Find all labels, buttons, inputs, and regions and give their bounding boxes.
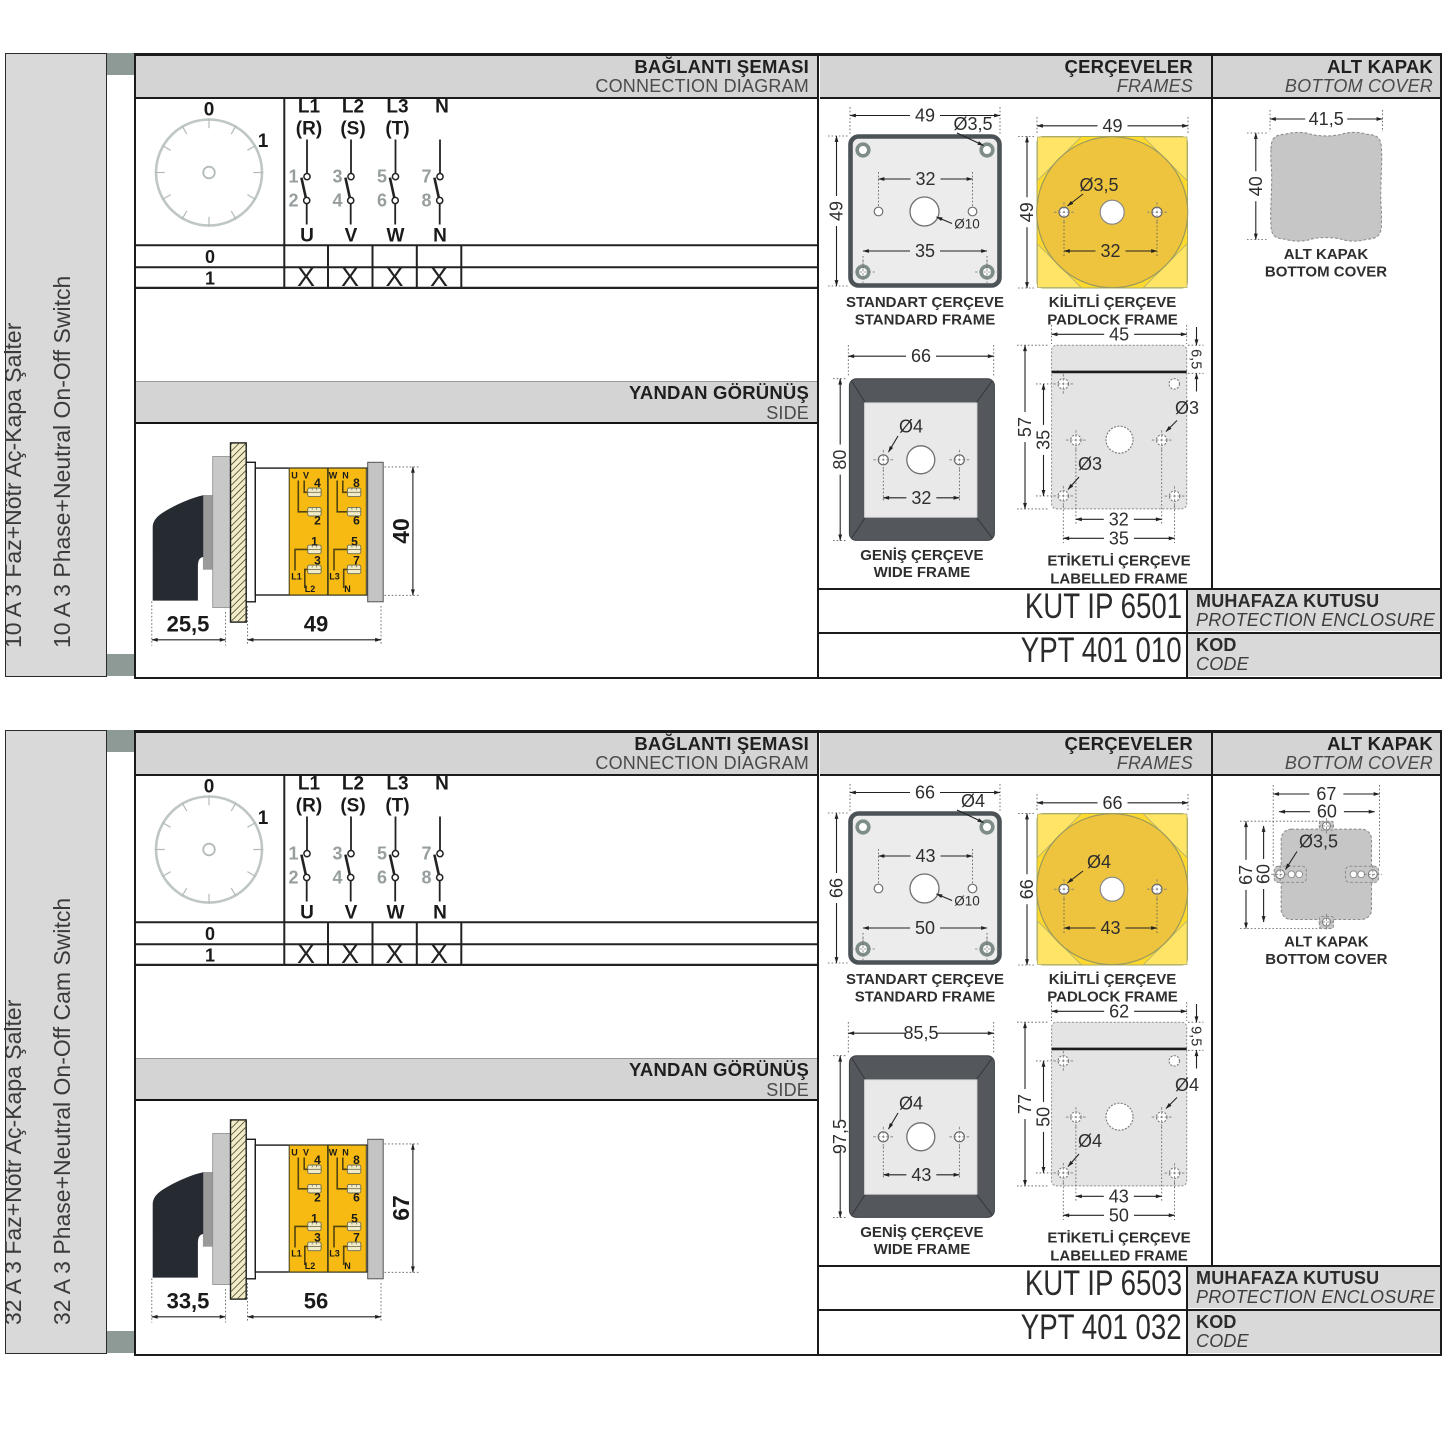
svg-text:Ø3,5: Ø3,5 [1079,175,1118,195]
svg-text:8: 8 [353,476,360,490]
svg-text:W: W [387,903,405,924]
svg-text:X: X [385,262,403,292]
svg-text:67: 67 [388,1195,414,1221]
svg-text:1: 1 [205,269,215,289]
svg-text:0: 0 [205,924,215,944]
svg-text:N: N [433,903,447,924]
svg-text:L1: L1 [298,776,321,795]
svg-text:33,5: 33,5 [167,1289,210,1314]
svg-text:Ø4: Ø4 [899,417,923,437]
svg-text:66: 66 [915,783,935,803]
svg-text:X: X [430,262,448,292]
svg-text:43: 43 [911,1165,931,1185]
svg-text:1: 1 [288,844,298,864]
svg-text:8: 8 [421,191,431,211]
svg-text:35: 35 [915,241,935,261]
svg-text:Ø10: Ø10 [954,894,980,909]
svg-text:6: 6 [353,1191,360,1205]
svg-text:43: 43 [1100,918,1120,938]
svg-text:U: U [300,903,314,924]
svg-text:(R): (R) [296,796,322,817]
svg-text:L3: L3 [329,1249,340,1259]
svg-text:66: 66 [911,346,931,366]
svg-text:25,5: 25,5 [167,612,210,637]
svg-text:3: 3 [314,1231,321,1245]
svg-text:ETİKETLİ ÇERÇEVE: ETİKETLİ ÇERÇEVE [1047,553,1190,570]
svg-text:4: 4 [332,868,342,888]
svg-text:1: 1 [258,131,269,152]
svg-text:45: 45 [1109,324,1129,344]
svg-text:2: 2 [288,868,298,888]
svg-text:8: 8 [421,868,431,888]
svg-text:6: 6 [353,514,360,528]
svg-text:1: 1 [258,808,269,829]
svg-text:Ø4: Ø4 [1175,1075,1199,1095]
svg-text:1: 1 [288,167,298,187]
svg-text:L1: L1 [291,1249,302,1259]
svg-text:2: 2 [314,1191,321,1205]
svg-text:L2: L2 [305,1261,316,1271]
svg-text:Ø3,5: Ø3,5 [1299,832,1338,852]
svg-text:40: 40 [388,518,414,544]
svg-text:(S): (S) [340,119,365,140]
svg-text:(T): (T) [385,119,409,140]
svg-text:6: 6 [377,191,387,211]
svg-text:Ø3: Ø3 [1078,454,1102,474]
svg-text:W: W [329,471,338,481]
svg-text:W: W [387,226,405,247]
svg-text:BOTTOM COVER: BOTTOM COVER [1265,951,1387,968]
svg-text:1: 1 [311,535,318,549]
svg-text:57: 57 [1015,417,1035,437]
svg-text:4: 4 [314,476,321,490]
svg-text:0: 0 [204,100,215,121]
svg-text:Ø4: Ø4 [899,1094,923,1114]
svg-text:6,5: 6,5 [1188,349,1204,369]
svg-text:4: 4 [314,1153,321,1167]
svg-text:0: 0 [204,777,215,798]
svg-text:X: X [341,262,359,292]
svg-text:3: 3 [332,167,342,187]
svg-text:STANDART ÇERÇEVE: STANDART ÇERÇEVE [846,971,1004,988]
svg-text:N: N [344,584,351,594]
svg-text:LABELLED FRAME: LABELLED FRAME [1050,1248,1188,1265]
svg-text:97,5: 97,5 [830,1119,850,1154]
svg-text:62: 62 [1109,1001,1129,1021]
svg-text:3: 3 [332,844,342,864]
svg-text:GENİŞ ÇERÇEVE: GENİŞ ÇERÇEVE [860,547,983,564]
svg-text:X: X [430,939,448,969]
svg-text:49: 49 [304,612,328,637]
svg-text:2: 2 [314,514,321,528]
svg-text:Ø10: Ø10 [954,217,980,232]
svg-text:L3: L3 [329,572,340,582]
svg-text:X: X [341,939,359,969]
svg-text:5: 5 [377,844,387,864]
svg-text:L3: L3 [386,99,408,118]
svg-text:49: 49 [1017,202,1037,222]
svg-text:L1: L1 [291,572,302,582]
svg-text:32: 32 [915,169,935,189]
svg-text:X: X [385,939,403,969]
svg-text:80: 80 [830,450,850,470]
svg-text:49: 49 [915,106,935,126]
svg-text:U: U [291,471,298,481]
svg-text:U: U [300,226,314,247]
svg-text:50: 50 [1034,1107,1054,1127]
svg-text:43: 43 [1109,1186,1129,1206]
svg-text:35: 35 [1034,430,1054,450]
svg-text:49: 49 [827,201,847,221]
svg-text:7: 7 [353,1231,360,1245]
svg-text:56: 56 [304,1289,328,1314]
svg-text:85,5: 85,5 [903,1023,938,1043]
svg-text:N: N [435,776,449,795]
svg-text:N: N [344,1261,351,1271]
svg-text:40: 40 [1246,176,1266,196]
svg-text:L3: L3 [386,776,408,795]
svg-text:V: V [303,471,309,481]
svg-text:50: 50 [1109,1205,1129,1225]
svg-text:3: 3 [314,554,321,568]
svg-text:32: 32 [1100,241,1120,261]
svg-text:Ø4: Ø4 [1078,1131,1102,1151]
svg-text:41,5: 41,5 [1309,109,1344,129]
svg-text:60: 60 [1254,864,1274,884]
svg-text:N: N [342,1148,349,1158]
svg-text:STANDARD FRAME: STANDARD FRAME [855,312,996,329]
svg-text:8: 8 [353,1153,360,1167]
svg-text:Ø4: Ø4 [1087,852,1111,872]
svg-text:9,5: 9,5 [1188,1026,1204,1046]
svg-text:4: 4 [332,191,342,211]
svg-text:43: 43 [915,846,935,866]
svg-text:7: 7 [353,554,360,568]
svg-text:35: 35 [1109,528,1129,548]
svg-text:L1: L1 [298,99,321,118]
svg-text:L2: L2 [305,584,316,594]
svg-text:66: 66 [827,878,847,898]
svg-text:N: N [433,226,447,247]
svg-text:66: 66 [1102,793,1122,813]
svg-text:5: 5 [351,1212,358,1226]
svg-text:BOTTOM COVER: BOTTOM COVER [1265,264,1387,281]
svg-text:66: 66 [1017,879,1037,899]
svg-text:ALT KAPAK: ALT KAPAK [1284,934,1369,951]
svg-text:KİLİTLİ ÇERÇEVE: KİLİTLİ ÇERÇEVE [1049,971,1177,988]
svg-text:WIDE FRAME: WIDE FRAME [874,564,971,581]
svg-text:60: 60 [1317,802,1337,822]
svg-text:32: 32 [1109,509,1129,529]
svg-text:LABELLED FRAME: LABELLED FRAME [1050,571,1188,588]
svg-text:L2: L2 [342,776,364,795]
svg-text:L2: L2 [342,99,364,118]
svg-text:Ø3,5: Ø3,5 [953,114,992,134]
svg-text:5: 5 [351,535,358,549]
svg-text:V: V [345,903,358,924]
svg-text:GENİŞ ÇERÇEVE: GENİŞ ÇERÇEVE [860,1224,983,1241]
svg-text:32: 32 [911,488,931,508]
svg-text:W: W [329,1148,338,1158]
svg-text:49: 49 [1102,116,1122,136]
svg-text:(S): (S) [340,796,365,817]
svg-text:V: V [303,1148,309,1158]
svg-text:N: N [342,471,349,481]
svg-text:1: 1 [205,946,215,966]
svg-text:ETİKETLİ ÇERÇEVE: ETİKETLİ ÇERÇEVE [1047,1230,1190,1247]
svg-text:STANDART ÇERÇEVE: STANDART ÇERÇEVE [846,294,1004,311]
svg-text:2: 2 [288,191,298,211]
svg-text:50: 50 [915,918,935,938]
svg-text:(T): (T) [385,796,409,817]
svg-text:77: 77 [1015,1094,1035,1114]
svg-text:7: 7 [421,844,431,864]
svg-text:5: 5 [377,167,387,187]
svg-text:V: V [345,226,358,247]
svg-text:X: X [297,262,315,292]
svg-text:6: 6 [377,868,387,888]
svg-text:(R): (R) [296,119,322,140]
svg-text:U: U [291,1148,298,1158]
svg-text:WIDE FRAME: WIDE FRAME [874,1241,971,1258]
svg-text:ALT KAPAK: ALT KAPAK [1284,246,1369,263]
svg-text:N: N [435,99,449,118]
svg-text:1: 1 [311,1212,318,1226]
svg-text:X: X [297,939,315,969]
svg-text:Ø3: Ø3 [1175,398,1199,418]
svg-text:STANDARD FRAME: STANDARD FRAME [855,989,996,1006]
svg-text:0: 0 [205,247,215,267]
svg-text:7: 7 [421,167,431,187]
svg-text:KİLİTLİ ÇERÇEVE: KİLİTLİ ÇERÇEVE [1049,294,1177,311]
svg-text:Ø4: Ø4 [961,791,985,811]
